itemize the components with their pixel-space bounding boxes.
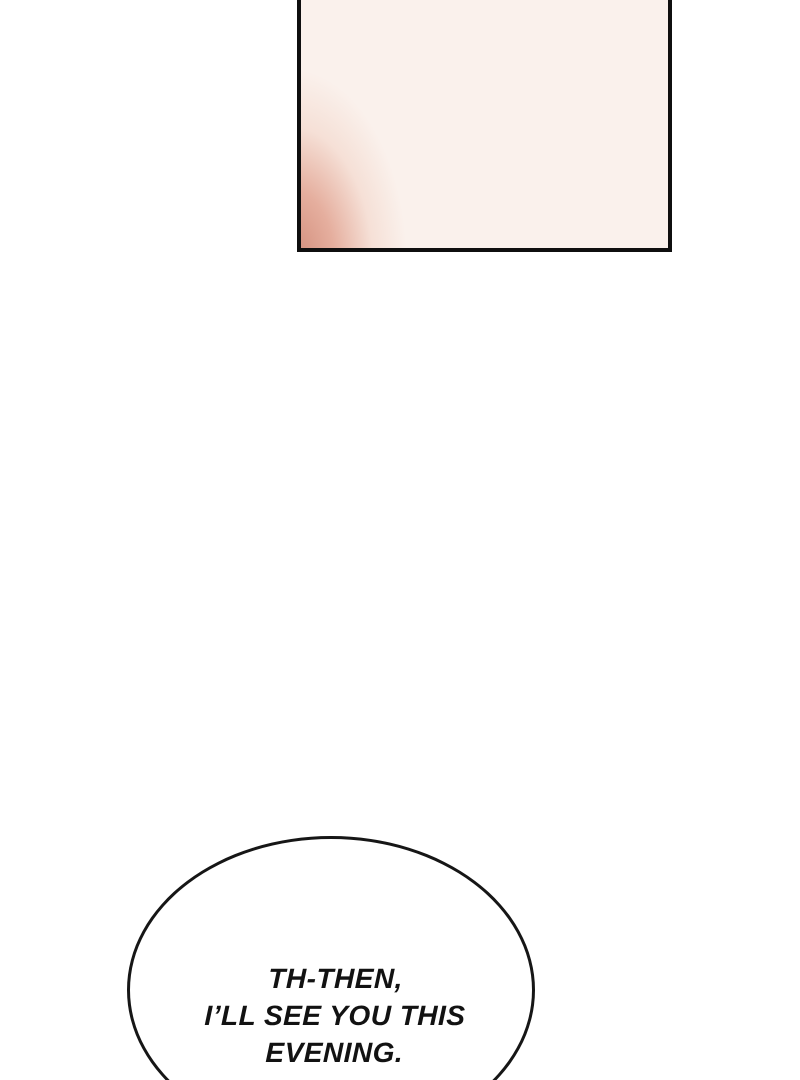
speech-bubble-text: TH-THEN, I’LL SEE YOU THIS EVENING. — [131, 960, 539, 1071]
speech-line-2: I’LL SEE YOU THIS — [132, 997, 539, 1034]
comic-panel — [297, 0, 672, 252]
panel-blush-shading — [301, 0, 668, 248]
comic-page: TH-THEN, I’LL SEE YOU THIS EVENING. — [0, 0, 800, 1080]
speech-line-1: TH-THEN, — [132, 960, 539, 997]
speech-line-3: EVENING. — [131, 1034, 538, 1071]
